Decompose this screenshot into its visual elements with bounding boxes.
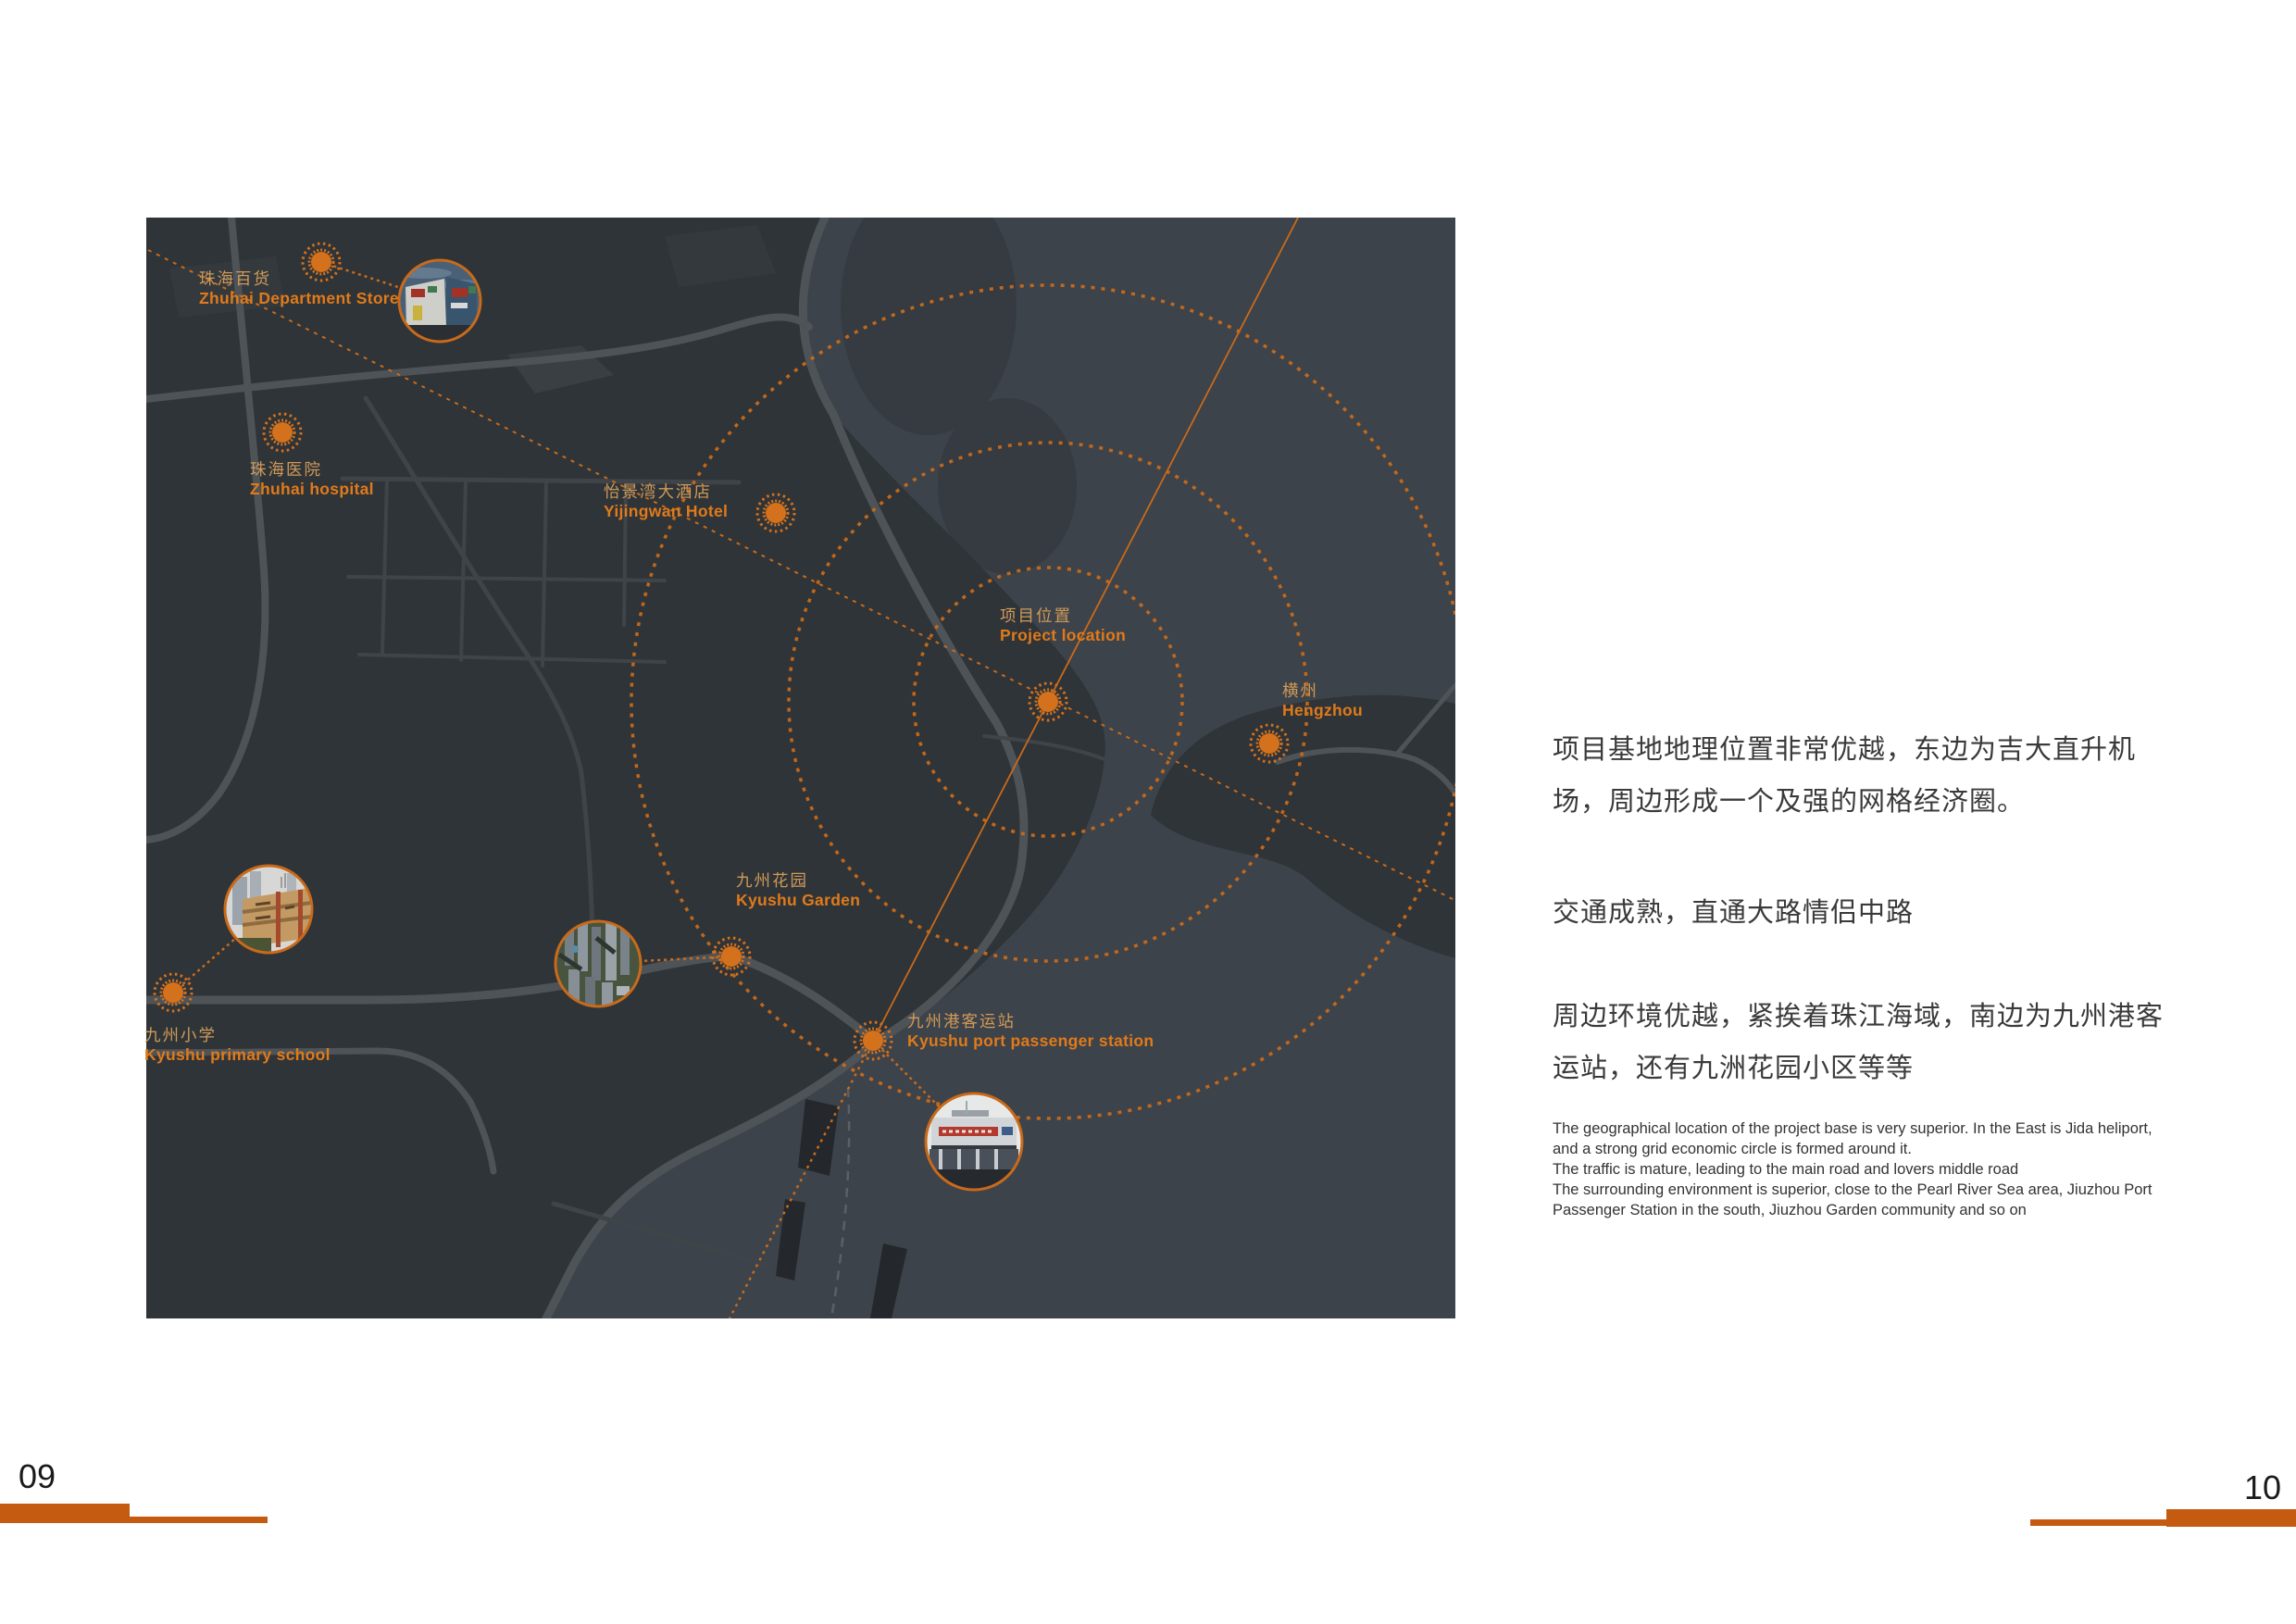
paragraph-traffic: 交通成熟，直通大路情侣中路 bbox=[1553, 887, 2171, 939]
paragraph-environment: 周边环境优越，紧挨着珠江海域，南边为九州港客运站，还有九洲花园小区等等 bbox=[1553, 991, 2171, 1094]
footer-bar-right-thin bbox=[2030, 1519, 2166, 1526]
map-graphic bbox=[146, 218, 1455, 1318]
photo-kyushu-garden bbox=[555, 921, 641, 1006]
page-number-left: 09 bbox=[19, 1457, 56, 1496]
paragraph-location: 项目基地地理位置非常优越，东边为吉大直升机场，周边形成一个及强的网格经济圈。 bbox=[1553, 724, 2171, 828]
photo-kyushu-port-passenger-station bbox=[926, 1093, 1022, 1190]
page-number-right: 10 bbox=[2244, 1468, 2281, 1507]
slide-page: 珠海百货Zhuhai Department Store珠海医院Zhuhai ho… bbox=[0, 0, 2296, 1624]
photo-kyushu-primary-school bbox=[225, 866, 312, 955]
location-map: 珠海百货Zhuhai Department Store珠海医院Zhuhai ho… bbox=[146, 218, 1455, 1318]
paragraph-english: The geographical location of the project… bbox=[1553, 1118, 2171, 1220]
footer-bar-left-thick bbox=[0, 1504, 130, 1523]
footer-bar-right-thick bbox=[2166, 1509, 2296, 1527]
description-panel: 项目基地地理位置非常优越，东边为吉大直升机场，周边形成一个及强的网格经济圈。 交… bbox=[1553, 724, 2171, 1220]
footer-bar-left-thin bbox=[130, 1517, 268, 1523]
